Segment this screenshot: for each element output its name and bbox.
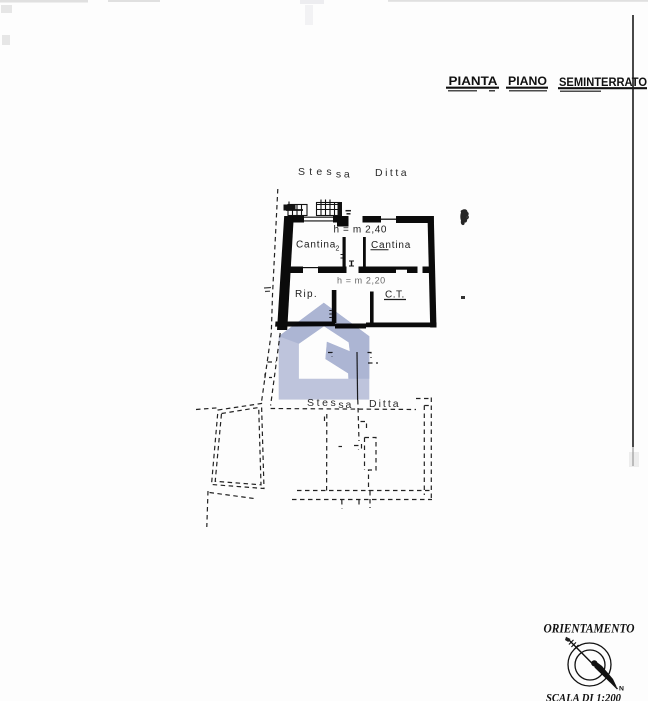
svg-text:h = m 2,40: h = m 2,40	[334, 225, 388, 236]
svg-text:h = m 2,20: h = m 2,20	[337, 276, 386, 286]
svg-text:2: 2	[336, 246, 340, 253]
svg-text:PIANO: PIANO	[508, 74, 547, 88]
svg-text:PIANTA: PIANTA	[449, 74, 498, 88]
svg-text:Rip.: Rip.	[295, 289, 318, 300]
svg-text:C.T.: C.T.	[385, 290, 405, 301]
svg-text:ORIENTAMENTO: ORIENTAMENTO	[544, 622, 635, 636]
svg-text:SCALA DI 1:200: SCALA DI 1:200	[546, 692, 621, 701]
svg-text:Ditta: Ditta	[369, 398, 401, 410]
svg-text:Cantina: Cantina	[296, 240, 336, 251]
svg-text:Ditta: Ditta	[375, 167, 409, 179]
